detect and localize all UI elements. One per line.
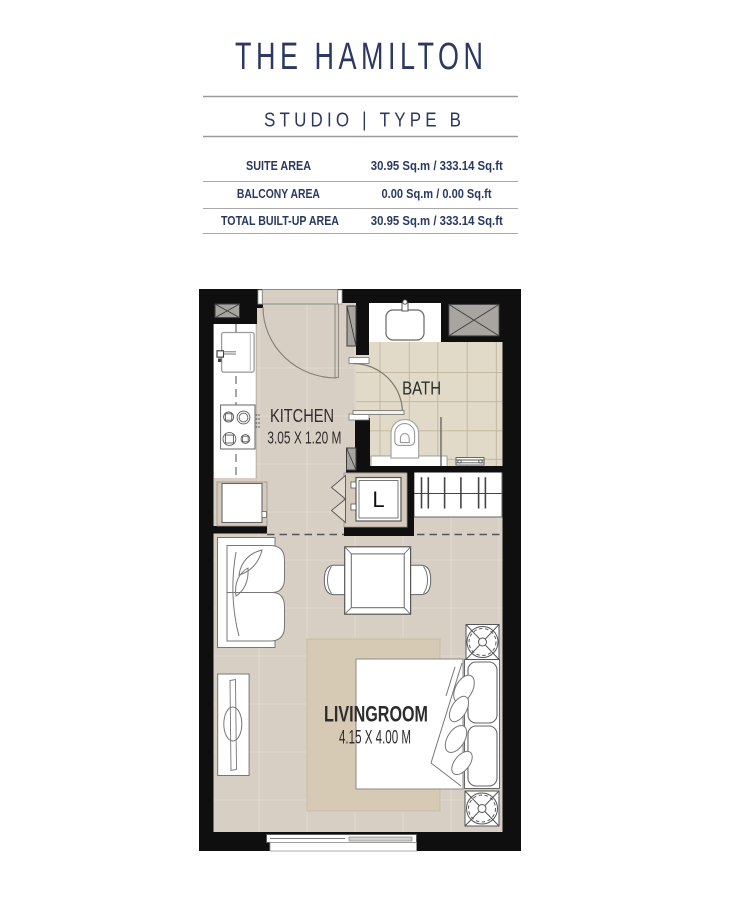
svg-text:BATH: BATH — [402, 379, 441, 399]
svg-text:0.00 Sq.m / 0.00 Sq.ft: 0.00 Sq.m / 0.00 Sq.ft — [382, 186, 493, 201]
svg-text:KITCHEN: KITCHEN — [270, 406, 334, 426]
svg-text:L: L — [372, 487, 384, 512]
svg-text:30.95 Sq.m / 333.14 Sq.ft: 30.95 Sq.m / 333.14 Sq.ft — [371, 213, 504, 228]
svg-text:STUDIO | TYPE B: STUDIO | TYPE B — [264, 108, 461, 131]
svg-text:TOTAL BUILT-UP AREA: TOTAL BUILT-UP AREA — [221, 213, 339, 228]
svg-text:SUITE AREA: SUITE AREA — [246, 158, 312, 173]
svg-text:30.95 Sq.m / 333.14 Sq.ft: 30.95 Sq.m / 333.14 Sq.ft — [371, 158, 504, 173]
svg-text:4.15 X 4.00 M: 4.15 X 4.00 M — [339, 728, 411, 749]
svg-text:BALCONY AREA: BALCONY AREA — [237, 186, 320, 201]
svg-text:3.05 X 1.20 M: 3.05 X 1.20 M — [267, 428, 341, 448]
svg-text:LIVINGROOM: LIVINGROOM — [324, 702, 428, 727]
